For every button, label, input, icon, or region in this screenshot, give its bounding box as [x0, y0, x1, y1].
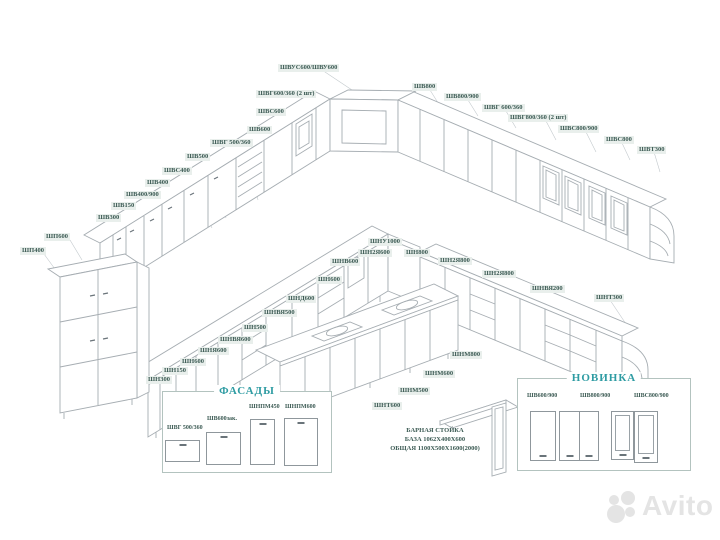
facade-handle-icon	[179, 444, 186, 446]
facade-handle-icon	[298, 422, 305, 424]
facades-title: ФАСАДЫ	[214, 385, 280, 397]
bar-stand-line: БАЗА 1062Х400Х600	[355, 435, 515, 444]
novinka-cabinet-1	[530, 411, 556, 461]
avito-logo-icon	[604, 488, 638, 524]
facade-panel-4	[284, 418, 318, 466]
facade-label-4: ШНПМ600	[285, 404, 316, 410]
novinka-label-2: ШВ800/900	[580, 393, 610, 399]
novinka-title: НОВИНКА	[567, 372, 641, 384]
facade-label-2: ШВ600зак.	[207, 416, 237, 422]
kitchen-catalog-page: ШВ300ШВ150ШВ400/900ШВ400ШВС400ШВ500ШВГ 5…	[0, 0, 720, 540]
facade-handle-icon	[220, 436, 227, 438]
novinka-cabinet-2	[559, 411, 599, 461]
novinka-label-1: ШВ600/900	[527, 393, 557, 399]
cabinet-handle-icon	[619, 454, 626, 456]
bar-stand-line: БАРНАЯ СТОЙКА	[355, 426, 515, 435]
novinka-cabinet-3-right	[634, 411, 658, 463]
bar-stand-caption: БАРНАЯ СТОЙКА БАЗА 1062Х400Х600 ОБЩАЯ 11…	[355, 426, 515, 453]
cabinet-handle-icon	[585, 455, 592, 457]
cabinet-divider	[579, 412, 580, 460]
facade-panel-2	[206, 432, 241, 465]
facade-panel-3	[250, 419, 275, 465]
watermark-brand-text: Avito	[642, 490, 713, 522]
cabinet-handle-icon	[540, 455, 547, 457]
facade-label-1: ШВГ 500/360	[167, 425, 203, 431]
glass-door	[638, 415, 654, 454]
glass-door	[615, 415, 630, 451]
facade-panel-1	[165, 440, 200, 462]
novinka-cabinet-3-left	[611, 411, 634, 460]
cabinet-handle-icon	[643, 457, 650, 459]
cabinet-handle-icon	[566, 455, 573, 457]
bar-stand-line: ОБЩАЯ 1100Х500Х1600(2000)	[355, 444, 515, 453]
wall-run-right-drawing	[398, 92, 674, 263]
facade-label-3: ШНПМ450	[249, 404, 280, 410]
tall-cabinet-drawing	[48, 254, 149, 419]
novinka-label-3: ШВС800/900	[634, 393, 669, 399]
avito-watermark: Avito	[604, 488, 713, 524]
facade-handle-icon	[259, 423, 266, 425]
